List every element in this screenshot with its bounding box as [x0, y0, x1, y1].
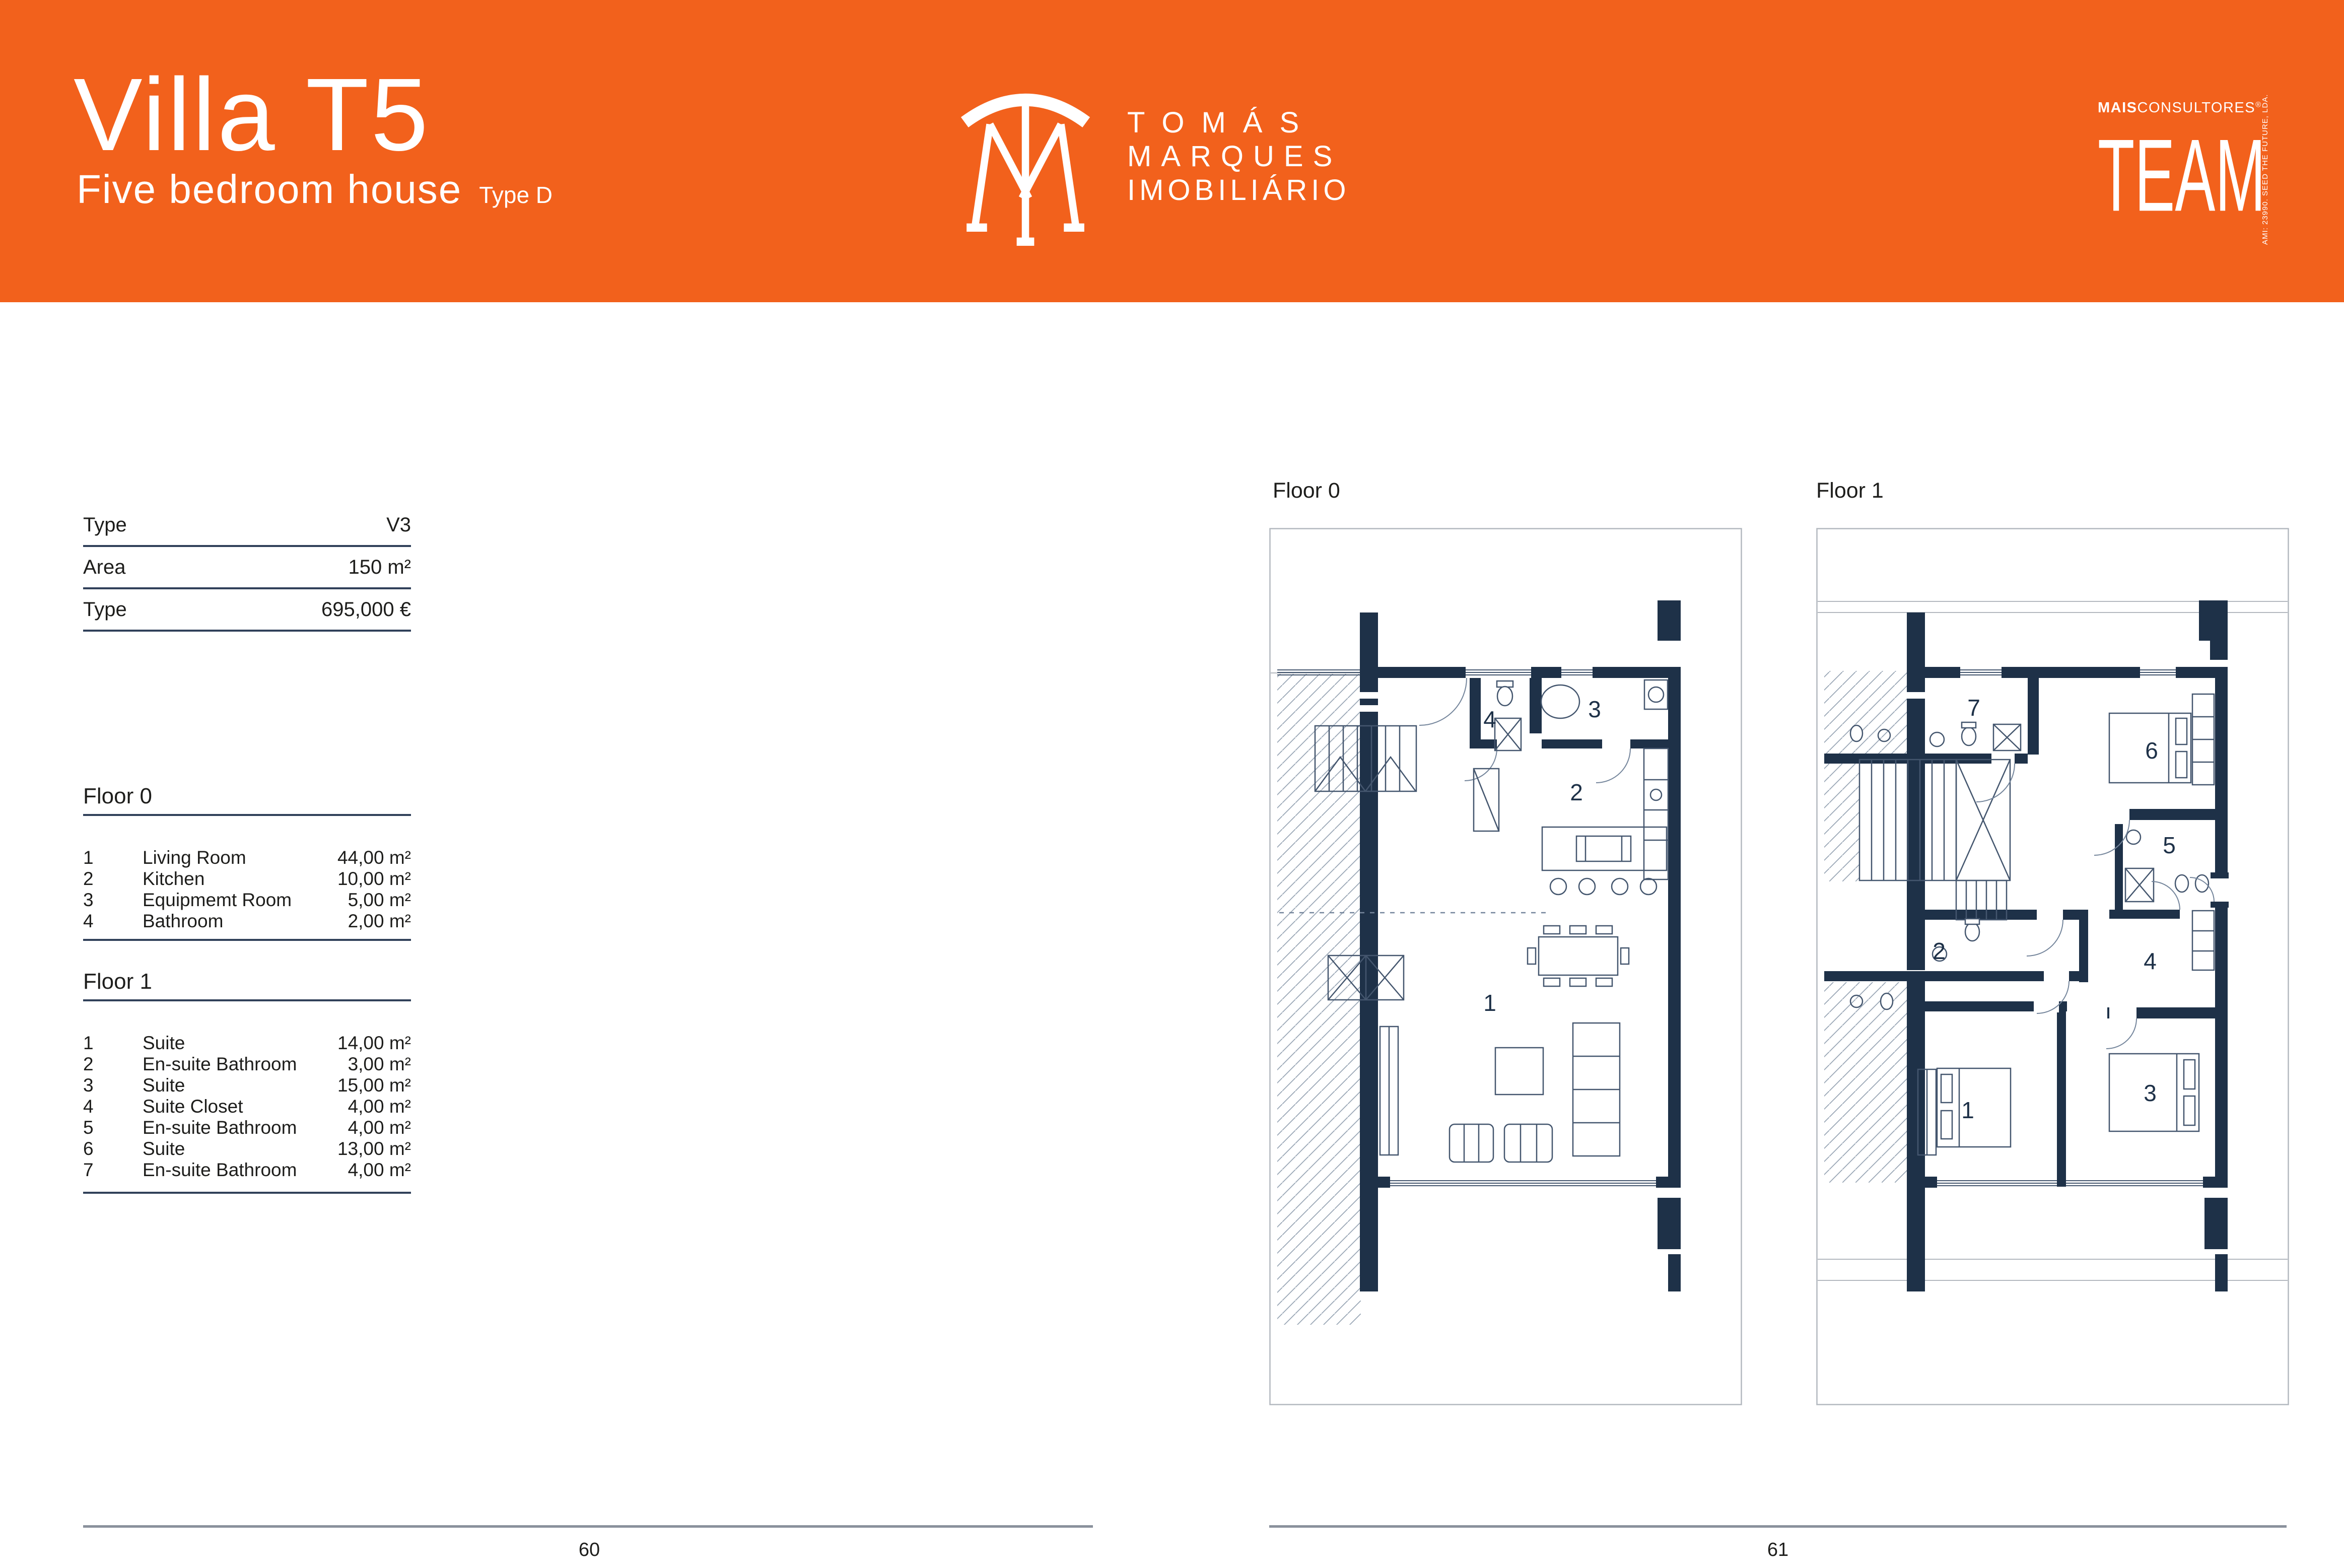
- list-item: 1 Suite 14,00 m²: [83, 1033, 411, 1054]
- list-item: 6 Suite 13,00 m²: [83, 1138, 411, 1160]
- room-name: En-suite Bathroom: [143, 1160, 348, 1181]
- spec-label: Area: [83, 556, 126, 579]
- room-number: 5: [83, 1117, 143, 1138]
- tm-monogram-icon: [955, 74, 1096, 249]
- room-area: 14,00 m²: [337, 1033, 411, 1054]
- room-number: 6: [83, 1138, 143, 1160]
- brand-line-3: IMOBILIÁRIO: [1127, 173, 1350, 207]
- plan-room-label: 7: [1967, 694, 1980, 721]
- room-name: Bathroom: [143, 911, 348, 932]
- room-number: 7: [83, 1160, 143, 1181]
- floor1-plan-drawing: [1816, 528, 2289, 1405]
- floor0-room-list: 1 Living Room 44,00 m² 2 Kitchen 10,00 m…: [83, 847, 411, 932]
- floor0-heading: Floor 0: [83, 784, 152, 809]
- list-item: 2 Kitchen 10,00 m²: [83, 868, 411, 890]
- brand-line-1: TOMÁS: [1127, 106, 1350, 140]
- room-number: 4: [83, 911, 143, 932]
- agency-name: MAISCONSULTORES®: [2098, 100, 2284, 116]
- list-item: 4 Bathroom 2,00 m²: [83, 911, 411, 932]
- room-number: 2: [83, 1054, 143, 1075]
- room-name: En-suite Bathroom: [143, 1117, 348, 1138]
- plan-room-label: 5: [2163, 832, 2176, 859]
- room-area: 2,00 m²: [348, 911, 411, 932]
- rule: [83, 814, 411, 816]
- room-number: 1: [83, 1033, 143, 1054]
- plan-room-label: 6: [2145, 737, 2158, 764]
- spec-label: Type: [83, 598, 127, 621]
- room-area: 4,00 m²: [348, 1117, 411, 1138]
- rule: [83, 1192, 411, 1194]
- room-number: 1: [83, 847, 143, 868]
- list-item: 7 En-suite Bathroom 4,00 m²: [83, 1160, 411, 1181]
- floor0-plan-drawing: [1269, 528, 1742, 1405]
- room-number: 2: [83, 868, 143, 890]
- agency-team-wordmark: TEAM: [2098, 124, 2210, 227]
- floor0-plan: 1 2 3 4: [1269, 528, 1742, 1405]
- list-item: 5 En-suite Bathroom 4,00 m²: [83, 1117, 411, 1138]
- spec-value: V3: [386, 514, 411, 536]
- spec-value: 150 m²: [349, 556, 411, 579]
- room-area: 15,00 m²: [337, 1075, 411, 1096]
- spec-label: Type: [83, 514, 127, 536]
- room-name: Kitchen: [143, 868, 337, 890]
- floor1-heading: Floor 1: [83, 969, 152, 994]
- room-name: Equipmemt Room: [143, 890, 348, 911]
- plan-room-label: 2: [1933, 937, 1946, 965]
- room-area: 44,00 m²: [337, 847, 411, 868]
- agency-name-bold: MAIS: [2098, 100, 2138, 116]
- list-item: 2 En-suite Bathroom 3,00 m²: [83, 1054, 411, 1075]
- page-title: Villa T5: [74, 60, 430, 169]
- plan-room-label: 3: [2144, 1079, 2157, 1107]
- spec-row-price: Type 695,000 €: [83, 589, 411, 632]
- room-name: Suite Closet: [143, 1096, 348, 1117]
- plan-room-label: 4: [1483, 706, 1496, 733]
- list-item: 4 Suite Closet 4,00 m²: [83, 1096, 411, 1117]
- list-item: 1 Living Room 44,00 m²: [83, 847, 411, 868]
- spec-row-area: Area 150 m²: [83, 547, 411, 589]
- rule: [83, 939, 411, 941]
- plan-room-label: 2: [1570, 779, 1583, 806]
- room-name: En-suite Bathroom: [143, 1054, 348, 1075]
- room-area: 5,00 m²: [348, 890, 411, 911]
- brochure-page: Villa T5 Five bedroom house Type D: [0, 0, 2344, 1568]
- room-area: 10,00 m²: [337, 868, 411, 890]
- type-label: Type D: [479, 181, 553, 209]
- brand-logo: TOMÁS MARQUES IMOBILIÁRIO: [955, 74, 1350, 249]
- room-area: 13,00 m²: [337, 1138, 411, 1160]
- plan-room-label: 4: [2144, 947, 2157, 975]
- room-area: 3,00 m²: [348, 1054, 411, 1075]
- spec-table: Type V3 Area 150 m² Type 695,000 €: [83, 505, 411, 632]
- spec-value: 695,000 €: [321, 598, 411, 621]
- list-item: 3 Suite 15,00 m²: [83, 1075, 411, 1096]
- room-name: Suite: [143, 1138, 337, 1160]
- footer-rule-right: [1269, 1525, 2287, 1528]
- agency-name-rest: CONSULTORES: [2138, 100, 2256, 116]
- plan-room-label: 1: [1483, 989, 1496, 1016]
- room-number: 3: [83, 1075, 143, 1096]
- spec-row-type: Type V3: [83, 505, 411, 547]
- subtitle-row: Five bedroom house Type D: [77, 166, 553, 213]
- room-area: 4,00 m²: [348, 1160, 411, 1181]
- agency-logo: MAISCONSULTORES® TEAM: [2098, 100, 2284, 225]
- plan1-caption: Floor 1: [1816, 479, 1884, 503]
- header-band: Villa T5 Five bedroom house Type D: [0, 0, 2344, 302]
- footer-rule-left: [83, 1525, 1093, 1528]
- floor1-room-list: 1 Suite 14,00 m² 2 En-suite Bathroom 3,0…: [83, 1033, 411, 1181]
- room-name: Suite: [143, 1075, 337, 1096]
- brand-line-2: MARQUES: [1127, 140, 1350, 173]
- room-number: 3: [83, 890, 143, 911]
- list-item: 3 Equipmemt Room 5,00 m²: [83, 890, 411, 911]
- room-area: 4,00 m²: [348, 1096, 411, 1117]
- room-number: 4: [83, 1096, 143, 1117]
- plan-room-label: 3: [1588, 696, 1601, 723]
- rule: [83, 999, 411, 1001]
- plan0-caption: Floor 0: [1273, 479, 1340, 503]
- floor1-plan: 1 2 3 4 5 6 7: [1816, 528, 2289, 1405]
- agency-side-text: AMI: 23990. SEED THE FUTURE, LDA.: [2261, 127, 2269, 245]
- page-number-left: 60: [549, 1539, 630, 1561]
- plan-room-label: 1: [1961, 1097, 1974, 1124]
- room-name: Living Room: [143, 847, 337, 868]
- room-name: Suite: [143, 1033, 337, 1054]
- page-subtitle: Five bedroom house: [77, 166, 462, 213]
- brand-wordmark: TOMÁS MARQUES IMOBILIÁRIO: [1127, 106, 1350, 207]
- page-number-right: 61: [1738, 1539, 1818, 1561]
